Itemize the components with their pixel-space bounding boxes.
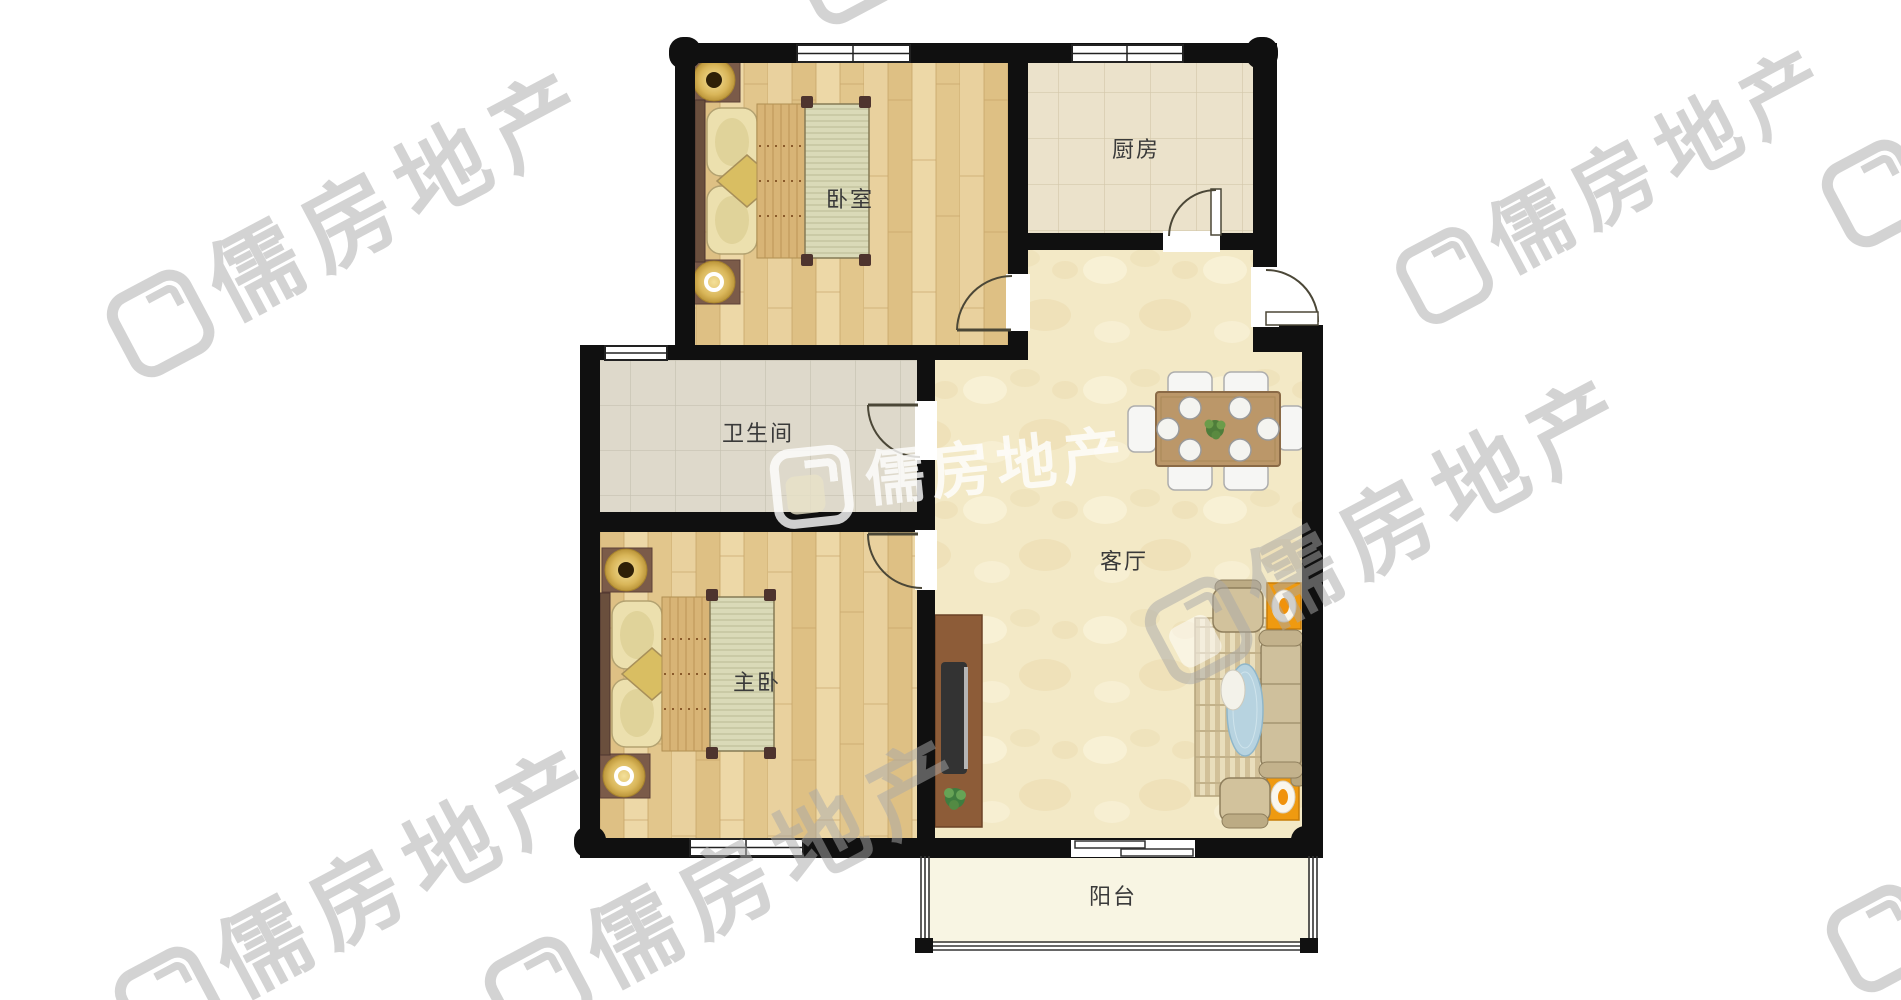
tv-icon [941, 662, 967, 774]
living-room-floor-hall [1025, 245, 1257, 360]
tray [1221, 670, 1245, 710]
floor-plan-image: 卧室 厨房 卫生间 主卧 客厅 阳台 U 儒房地产 U 儒房地产 U U 儒房地… [0, 0, 1901, 1000]
bathroom-label: 卫生间 [722, 422, 794, 447]
bathroom-window [605, 346, 667, 360]
bedroom-nightstand-lamp-bottom [690, 260, 740, 304]
floor-plan-drawing: 卧室 厨房 卫生间 主卧 客厅 阳台 [0, 0, 1901, 1000]
kitchen-label: 厨房 [1112, 138, 1160, 163]
living-label: 客厅 [1100, 550, 1148, 575]
armchair-bottom [1220, 778, 1270, 828]
balcony-label: 阳台 [1089, 885, 1137, 910]
sofa [1259, 630, 1305, 786]
bedroom-window [797, 45, 910, 62]
kitchen-window [1072, 45, 1183, 62]
bedroom-label: 卧室 [826, 188, 874, 213]
tv-cabinet [935, 615, 982, 827]
bedroom-nightstand-lamp-top [690, 58, 740, 102]
master-window [690, 839, 803, 856]
armchair-top [1213, 580, 1263, 632]
master-nightstand-lamp-top [602, 548, 652, 592]
master-nightstand-lamp-bottom [600, 754, 650, 798]
bedroom-bed [695, 96, 871, 266]
master-label: 主卧 [733, 671, 781, 696]
